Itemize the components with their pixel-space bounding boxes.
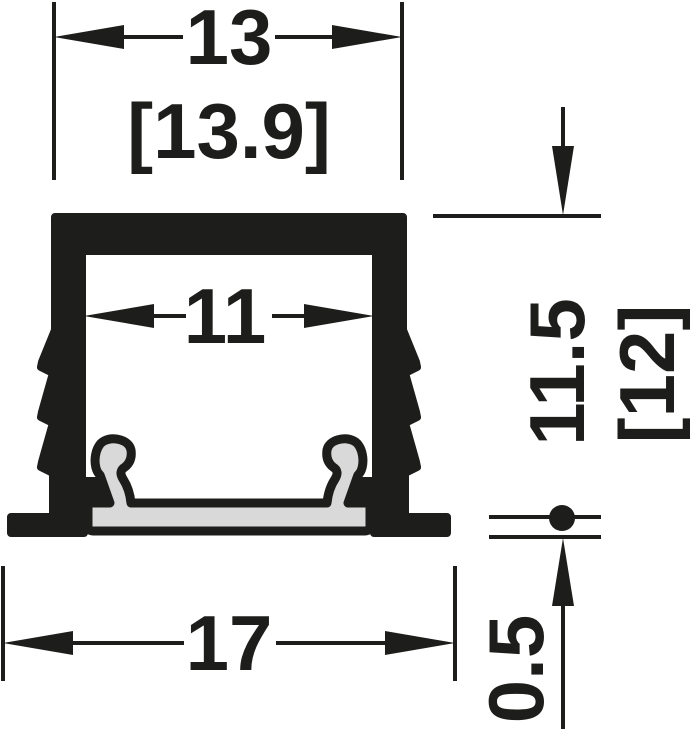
profile-drawing-svg: 13 [13.9] 11 11.5 [12] 0.5 — [0, 0, 691, 730]
dim-top-width-alt-label: [13.9] — [127, 87, 331, 175]
dim-inner-width: 11 — [84, 272, 374, 360]
dim-inner-width-label: 11 — [184, 272, 266, 360]
dim-arrow-up-icon — [552, 538, 574, 606]
dim-top-width-label: 13 — [186, 0, 273, 81]
dim-bottom-width-label: 17 — [186, 599, 273, 687]
diffuser-insert — [88, 439, 370, 531]
technical-drawing-canvas: 13 [13.9] 11 11.5 [12] 0.5 — [0, 0, 691, 730]
dim-arrow-right-icon — [304, 304, 374, 328]
dim-arrow-down-icon — [552, 146, 574, 215]
dim-dot-terminator — [549, 505, 575, 531]
dim-height-label: 11.5 — [513, 298, 601, 446]
dim-arrow-left-icon — [54, 25, 124, 49]
dim-arrow-left-icon — [3, 631, 73, 655]
dim-flange-label: 0.5 — [472, 615, 560, 723]
dim-height-alt-label: [12] — [603, 305, 691, 444]
dim-height: 11.5 [12] — [433, 107, 691, 446]
dim-arrow-right-icon — [385, 631, 455, 655]
profile-body — [11, 217, 447, 533]
dim-arrow-left-icon — [84, 304, 154, 328]
dim-bottom-width: 17 — [3, 566, 455, 687]
dim-flange-thickness: 0.5 — [472, 505, 601, 729]
dim-arrow-right-icon — [332, 25, 402, 49]
dim-top-width: 13 [13.9] — [54, 0, 402, 180]
